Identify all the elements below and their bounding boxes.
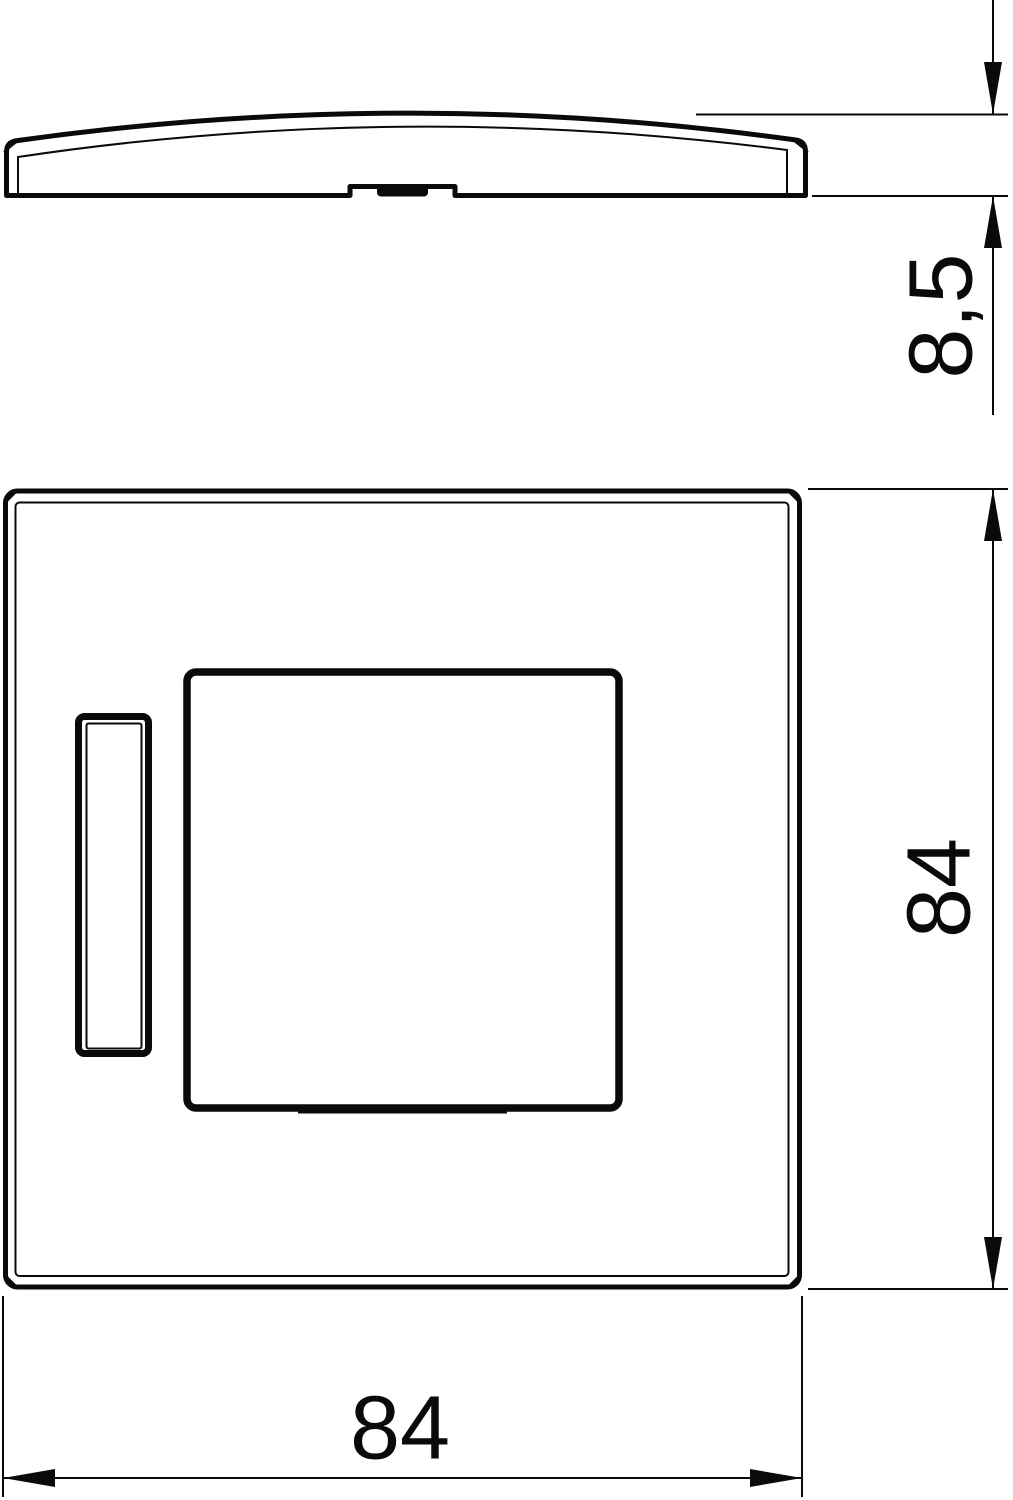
front-view <box>5 490 800 1288</box>
height-arrow-down-icon <box>984 1237 1002 1289</box>
width-arrow-right-icon <box>750 1469 802 1487</box>
height-arrow-up-icon <box>984 489 1002 541</box>
width-arrow-left-icon <box>3 1469 55 1487</box>
side-view-outer-outline <box>7 113 806 195</box>
front-view-label-field-outer <box>79 717 149 1054</box>
dimension-thickness: 8,5 <box>696 0 1008 415</box>
cover-plate-dimension-drawing: 8,5 84 <box>0 0 1013 1500</box>
side-view-inner-curve <box>18 127 787 194</box>
thickness-arrow-down-icon <box>984 62 1002 114</box>
dimension-height: 84 <box>808 489 1008 1289</box>
front-view-device-window <box>187 672 619 1108</box>
width-dimension-label: 84 <box>350 1379 450 1479</box>
front-view-latch-strip <box>298 1109 507 1114</box>
dimension-width: 84 <box>3 1296 802 1497</box>
technical-drawing-page: 8,5 84 <box>0 0 1013 1500</box>
side-profile-view <box>4 113 808 196</box>
side-view-latch-tab <box>377 186 428 197</box>
height-dimension-label: 84 <box>890 838 990 938</box>
thickness-arrow-up-icon <box>984 196 1002 248</box>
thickness-dimension-label: 8,5 <box>892 253 992 378</box>
